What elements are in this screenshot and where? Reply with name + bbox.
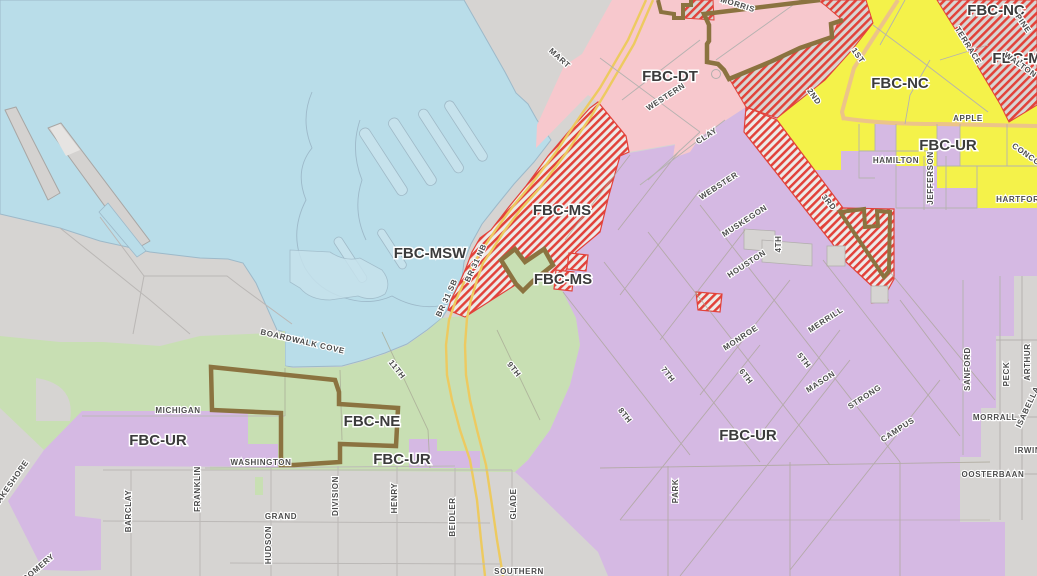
svg-text:GRAND: GRAND bbox=[265, 512, 297, 521]
svg-text:MICHIGAN: MICHIGAN bbox=[155, 406, 200, 415]
svg-text:FBC-UR: FBC-UR bbox=[373, 451, 431, 468]
svg-text:HUDSON: HUDSON bbox=[264, 526, 273, 564]
svg-text:PECK: PECK bbox=[1002, 362, 1011, 387]
svg-text:HENRY: HENRY bbox=[390, 483, 399, 514]
svg-text:FBC-NC: FBC-NC bbox=[871, 75, 929, 92]
svg-text:FRANKLIN: FRANKLIN bbox=[193, 466, 202, 512]
svg-text:FBC-UR: FBC-UR bbox=[719, 427, 777, 444]
svg-text:APPLE: APPLE bbox=[953, 114, 983, 123]
svg-text:SANFORD: SANFORD bbox=[963, 347, 972, 391]
svg-text:FBC-DT: FBC-DT bbox=[642, 68, 698, 85]
svg-text:FBC-MS: FBC-MS bbox=[534, 271, 592, 288]
svg-text:PARK: PARK bbox=[671, 479, 680, 503]
svg-text:BARCLAY: BARCLAY bbox=[124, 490, 133, 533]
svg-text:4TH: 4TH bbox=[774, 236, 783, 253]
svg-text:BEIDLER: BEIDLER bbox=[448, 497, 457, 536]
svg-text:FBC-MS: FBC-MS bbox=[533, 202, 591, 219]
svg-text:OOSTERBAAN: OOSTERBAAN bbox=[962, 470, 1025, 479]
svg-text:MORRALL: MORRALL bbox=[973, 413, 1017, 422]
svg-text:ARTHUR: ARTHUR bbox=[1023, 343, 1032, 380]
svg-text:WASHINGTON: WASHINGTON bbox=[231, 458, 292, 467]
svg-text:IRWIN: IRWIN bbox=[1015, 446, 1037, 455]
svg-text:HAMILTON: HAMILTON bbox=[873, 156, 919, 165]
svg-text:GLADE: GLADE bbox=[509, 488, 518, 519]
svg-text:JEFFERSON: JEFFERSON bbox=[926, 151, 935, 204]
svg-text:DIVISION: DIVISION bbox=[331, 476, 340, 516]
svg-text:SOUTHERN: SOUTHERN bbox=[494, 567, 544, 576]
svg-text:FBC-UR: FBC-UR bbox=[129, 432, 187, 449]
svg-text:HARTFORD: HARTFORD bbox=[996, 195, 1037, 204]
svg-text:FBC-MSW: FBC-MSW bbox=[394, 245, 467, 262]
svg-text:FBC-NE: FBC-NE bbox=[344, 413, 401, 430]
